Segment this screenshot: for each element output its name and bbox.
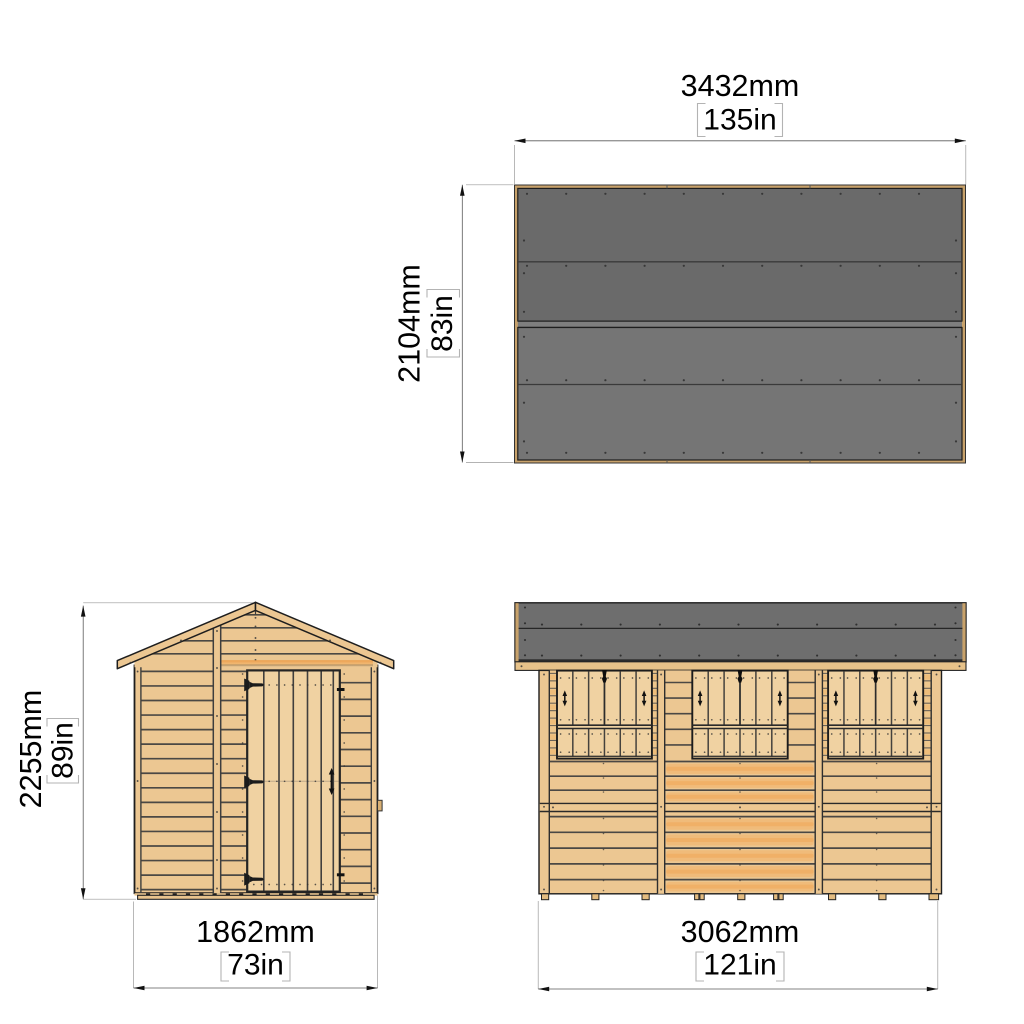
svg-text:3432mm: 3432mm (681, 69, 800, 103)
svg-text:2255mm: 2255mm (14, 690, 48, 809)
svg-text:3062mm: 3062mm (681, 915, 800, 949)
svg-text:121in: 121in (703, 949, 776, 982)
svg-text:135in: 135in (703, 104, 776, 137)
svg-text:2104mm: 2104mm (393, 264, 427, 383)
svg-text:73in: 73in (227, 949, 284, 982)
svg-text:83in: 83in (426, 295, 459, 352)
svg-text:1862mm: 1862mm (196, 915, 315, 949)
svg-text:89in: 89in (47, 722, 80, 779)
